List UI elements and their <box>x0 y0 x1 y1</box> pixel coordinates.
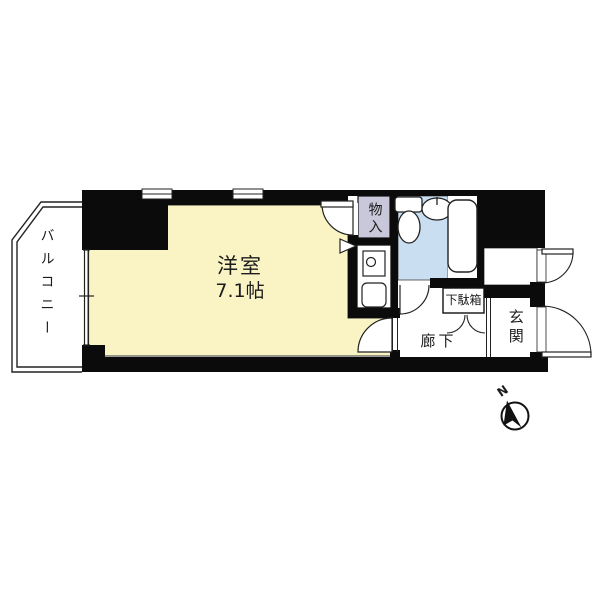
entrance-step-line <box>487 298 491 357</box>
mini-kitchen-icon <box>357 245 391 308</box>
entrance-label: 玄関 <box>506 309 525 347</box>
balcony-label: バルコニー <box>37 228 55 343</box>
bathtub-icon <box>448 200 477 272</box>
wall-bathroom-south <box>430 278 477 288</box>
wall-right-mid <box>530 282 545 307</box>
wall-kitchen-cap <box>348 308 400 318</box>
wall-bottom <box>82 357 548 372</box>
sink-icon <box>362 283 386 307</box>
closet-label: 物入 <box>365 202 383 236</box>
floor-plan: バルコニー 洋室 7.1帖 物入 下駄箱 廊下 玄関 N <box>0 0 600 600</box>
meter-box-area <box>484 248 537 285</box>
compass-icon <box>502 401 529 430</box>
corridor-label: 廊下 <box>411 332 466 351</box>
floor-plan-drawing <box>0 0 600 600</box>
pillar-top-right <box>477 190 545 248</box>
shoe-cabinet-label: 下駄箱 <box>440 293 487 308</box>
meter-box-door-icon <box>537 249 573 283</box>
western-room-label: 洋室 <box>185 253 295 279</box>
entrance-door-icon <box>537 306 591 357</box>
western-room-size-label: 7.1帖 <box>185 280 295 304</box>
